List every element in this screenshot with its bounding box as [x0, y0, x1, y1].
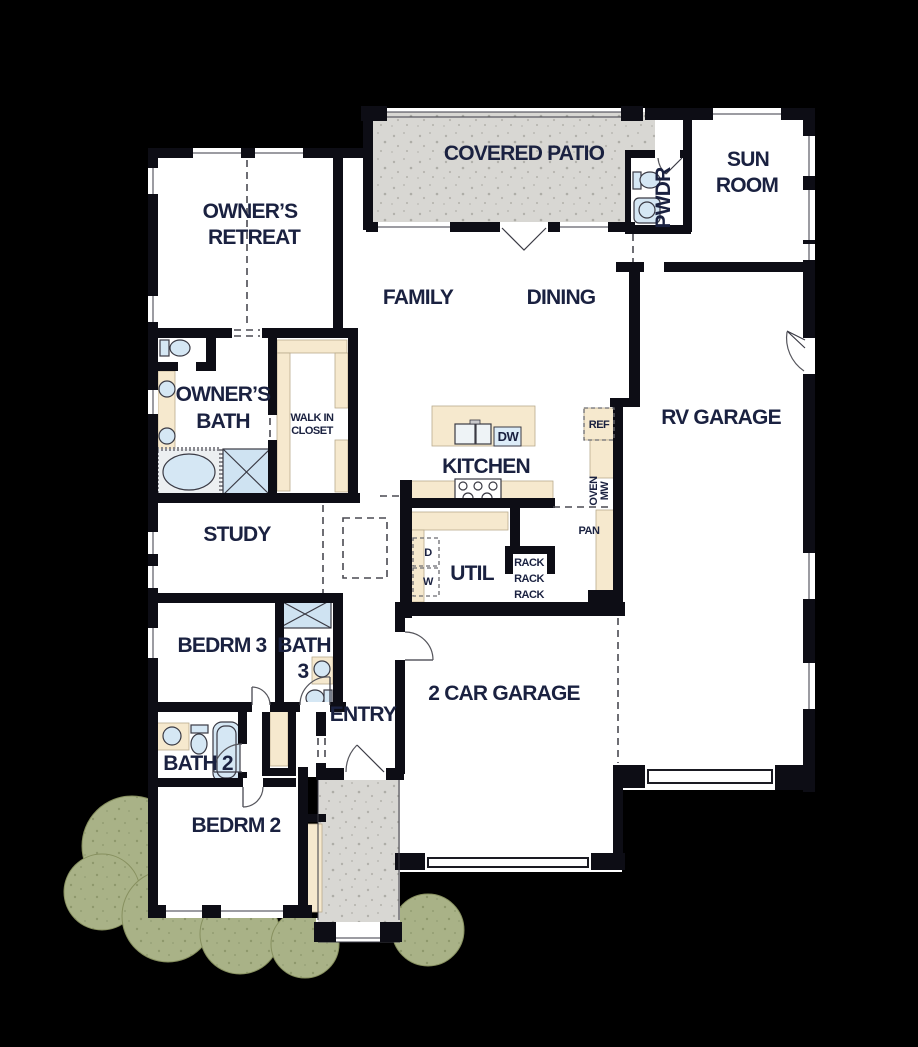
- porch-post: [314, 922, 336, 942]
- window: [148, 390, 158, 414]
- bath2-toilet: [191, 725, 208, 754]
- label-rack-1: RACK: [514, 557, 544, 569]
- pantry-shelf: [596, 510, 615, 602]
- bath3-sink: [314, 661, 330, 677]
- window: [193, 148, 241, 158]
- label-util: UTIL: [450, 562, 494, 585]
- label-sun-room-2: ROOM: [716, 174, 778, 197]
- window: [803, 244, 815, 260]
- owners-sink-1: [159, 381, 175, 397]
- label-bedrm3: BEDRM 3: [178, 634, 267, 657]
- label-ref: REF: [589, 419, 610, 431]
- label-dining: DINING: [527, 286, 596, 309]
- porch-floor: [318, 777, 400, 922]
- label-dryer: D: [424, 547, 432, 559]
- closet-shelf-top: [277, 340, 347, 353]
- label-rv-garage: RV GARAGE: [661, 406, 781, 429]
- patio-post: [621, 106, 643, 121]
- util-counter: [408, 512, 508, 530]
- island-sink: [455, 420, 491, 444]
- label-owners-retreat-2: RETREAT: [208, 226, 301, 249]
- closet-shelf-right-b: [335, 440, 348, 492]
- hall-closet-shelf: [270, 708, 288, 766]
- closet-shelf-right-a: [335, 353, 348, 408]
- bath2-sink: [163, 727, 181, 745]
- owners-toilet: [160, 340, 190, 356]
- closet-shelf-left: [277, 353, 290, 491]
- window: [148, 532, 158, 554]
- label-study: STUDY: [203, 523, 271, 546]
- label-bath3-1: BATH: [277, 634, 331, 657]
- owners-shower: [223, 449, 270, 495]
- label-bedrm2: BEDRM 2: [192, 814, 281, 837]
- label-entry: ENTRY: [330, 703, 397, 726]
- label-pan: PAN: [579, 525, 600, 537]
- window: [221, 905, 283, 918]
- window: [378, 222, 450, 232]
- label-rack-3: RACK: [514, 589, 544, 601]
- label-walk-in-2: CLOSET: [291, 425, 333, 437]
- label-owners-bath-2: BATH: [196, 410, 250, 433]
- window: [166, 905, 202, 918]
- patio-post: [361, 106, 387, 121]
- window: [148, 168, 158, 194]
- window: [148, 566, 158, 588]
- window: [803, 553, 815, 599]
- rv-garage-door: [648, 770, 772, 783]
- label-kitchen: KITCHEN: [442, 455, 530, 478]
- floor-plan-canvas: COVERED PATIO SUN ROOM PWDR OWNER’S RETR…: [0, 0, 918, 1047]
- label-owners-bath-1: OWNER’S: [176, 383, 272, 406]
- covered-patio-floor: [366, 112, 655, 230]
- label-walk-in-1: WALK IN: [291, 412, 334, 424]
- label-2-car-garage: 2 CAR GARAGE: [428, 682, 580, 705]
- oven-cabinet: [590, 440, 614, 478]
- label-covered-patio: COVERED PATIO: [444, 142, 605, 165]
- label-dw: DW: [498, 429, 520, 444]
- label-bath2: BATH 2: [163, 752, 233, 775]
- owners-tub: [163, 454, 215, 490]
- label-mw: MW: [599, 481, 611, 501]
- window: [803, 190, 815, 240]
- label-washer: W: [423, 576, 434, 588]
- bath3-shower: [279, 600, 331, 628]
- label-bath3-2: 3: [298, 660, 309, 683]
- window: [803, 663, 815, 709]
- label-sun-room-1: SUN: [727, 148, 769, 171]
- label-family: FAMILY: [383, 286, 454, 309]
- window: [148, 628, 158, 658]
- floor-plan: COVERED PATIO SUN ROOM PWDR OWNER’S RETR…: [0, 0, 918, 1047]
- window: [148, 296, 158, 322]
- porch-post: [380, 922, 402, 942]
- label-rack-2: RACK: [514, 573, 544, 585]
- label-owners-retreat-1: OWNER’S: [203, 200, 299, 223]
- owners-sink-2: [159, 428, 175, 444]
- window: [803, 136, 815, 176]
- window: [713, 108, 781, 120]
- window: [255, 148, 303, 158]
- two-car-garage-door: [428, 858, 588, 867]
- window: [560, 222, 608, 232]
- label-pwdr: PWDR: [652, 167, 675, 229]
